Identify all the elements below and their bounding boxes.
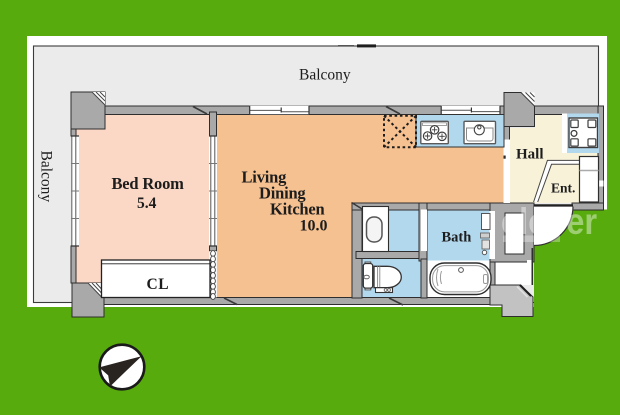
svg-text:Bath: Bath <box>442 230 472 246</box>
svg-text:5.4: 5.4 <box>137 195 157 212</box>
svg-text:Hall: Hall <box>516 147 544 163</box>
svg-text:Balcony: Balcony <box>38 151 55 203</box>
svg-text:10.0: 10.0 <box>300 218 328 235</box>
svg-text:Bed Room: Bed Room <box>112 174 185 193</box>
svg-text:Ent.: Ent. <box>551 181 575 196</box>
svg-text:Kitchen: Kitchen <box>270 200 325 219</box>
svg-text:Balcony: Balcony <box>299 67 351 84</box>
svg-text:CL: CL <box>147 276 170 293</box>
